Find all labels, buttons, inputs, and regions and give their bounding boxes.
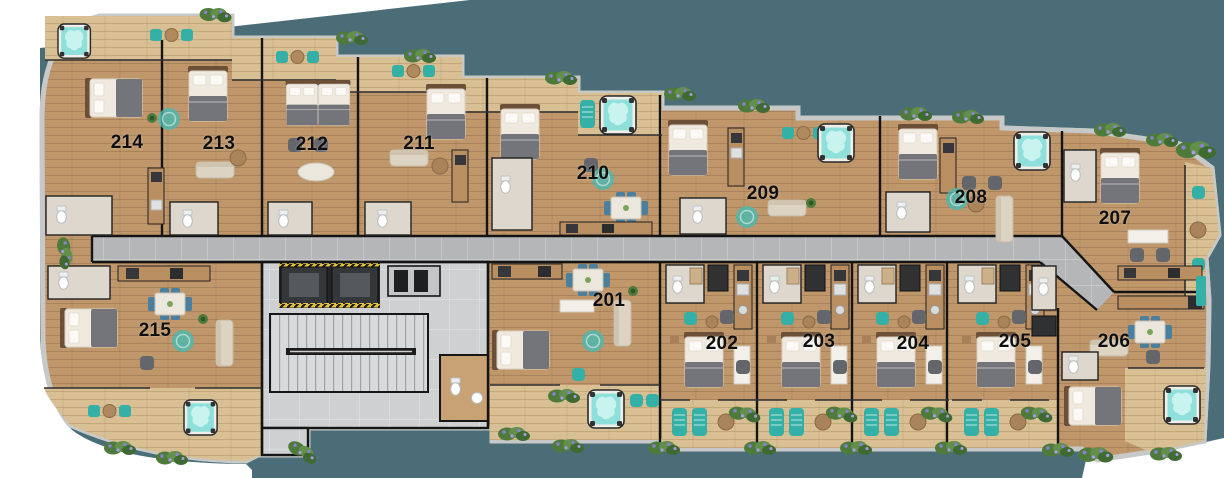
toilet-icon — [501, 176, 511, 193]
unit-label-206: 206 — [1098, 331, 1131, 353]
bed-icon — [668, 120, 708, 175]
unit-label-204: 204 — [897, 333, 930, 355]
unit-label-215: 215 — [139, 320, 172, 342]
bed-icon — [492, 330, 549, 370]
unit-label-202: 202 — [706, 333, 739, 355]
bed-icon — [1064, 386, 1121, 426]
floor-plan-svg — [0, 0, 1224, 478]
toilet-icon — [59, 272, 69, 289]
patio-set-icon — [88, 405, 131, 418]
toilet-icon — [279, 210, 289, 227]
patio-set-icon — [392, 65, 435, 78]
unit-label-201: 201 — [593, 290, 626, 312]
hot-tub-icon — [184, 400, 217, 435]
balcony-chair-icon — [630, 394, 643, 407]
bed-icon — [286, 80, 319, 125]
unit-label-205: 205 — [999, 331, 1032, 353]
toilet-icon — [1039, 278, 1049, 295]
bed-icon — [1100, 148, 1140, 203]
hot-tub-icon — [588, 390, 624, 428]
unit-label-211: 211 — [403, 133, 435, 155]
unit-label-209: 209 — [747, 183, 780, 205]
core — [262, 262, 488, 455]
toilet-icon — [451, 378, 461, 395]
toilet-icon — [897, 202, 907, 219]
toilet-icon — [1069, 356, 1079, 373]
elevators — [279, 262, 380, 308]
patio-set-icon — [276, 51, 319, 64]
toilet-icon — [693, 206, 703, 223]
unit-label-212: 212 — [296, 134, 329, 156]
toilet-icon — [57, 206, 67, 223]
toilet-icon — [1071, 164, 1081, 181]
bed-icon — [85, 78, 142, 118]
bed-icon — [500, 104, 540, 159]
hot-tub-icon — [1164, 386, 1200, 424]
hot-tub-icon — [818, 124, 854, 162]
bed-icon — [60, 308, 117, 348]
unit-label-214: 214 — [111, 132, 144, 154]
unit-label-210: 210 — [577, 163, 610, 185]
lounger-icon — [580, 100, 595, 128]
toilet-icon — [378, 210, 388, 227]
staircase — [270, 314, 428, 392]
patio-set-icon — [150, 29, 193, 42]
toilet-icon — [183, 210, 193, 227]
unit-label-207: 207 — [1099, 208, 1132, 230]
balcony-chair-icon — [646, 394, 659, 407]
floor-plan: 2012022032042052062072082092102112122132… — [0, 0, 1224, 478]
hot-tub-icon — [1014, 132, 1050, 170]
hot-tub-icon — [600, 96, 636, 134]
unit-label-213: 213 — [203, 133, 236, 155]
unit-label-208: 208 — [955, 187, 988, 209]
hot-tub-icon — [58, 24, 90, 58]
bed-icon — [188, 66, 228, 121]
core-bathroom — [440, 355, 488, 421]
bed-icon — [318, 80, 351, 125]
bed-icon — [426, 84, 466, 139]
bed-icon — [898, 124, 938, 179]
unit-label-203: 203 — [803, 331, 836, 353]
balcony-chair-icon — [1192, 186, 1205, 199]
